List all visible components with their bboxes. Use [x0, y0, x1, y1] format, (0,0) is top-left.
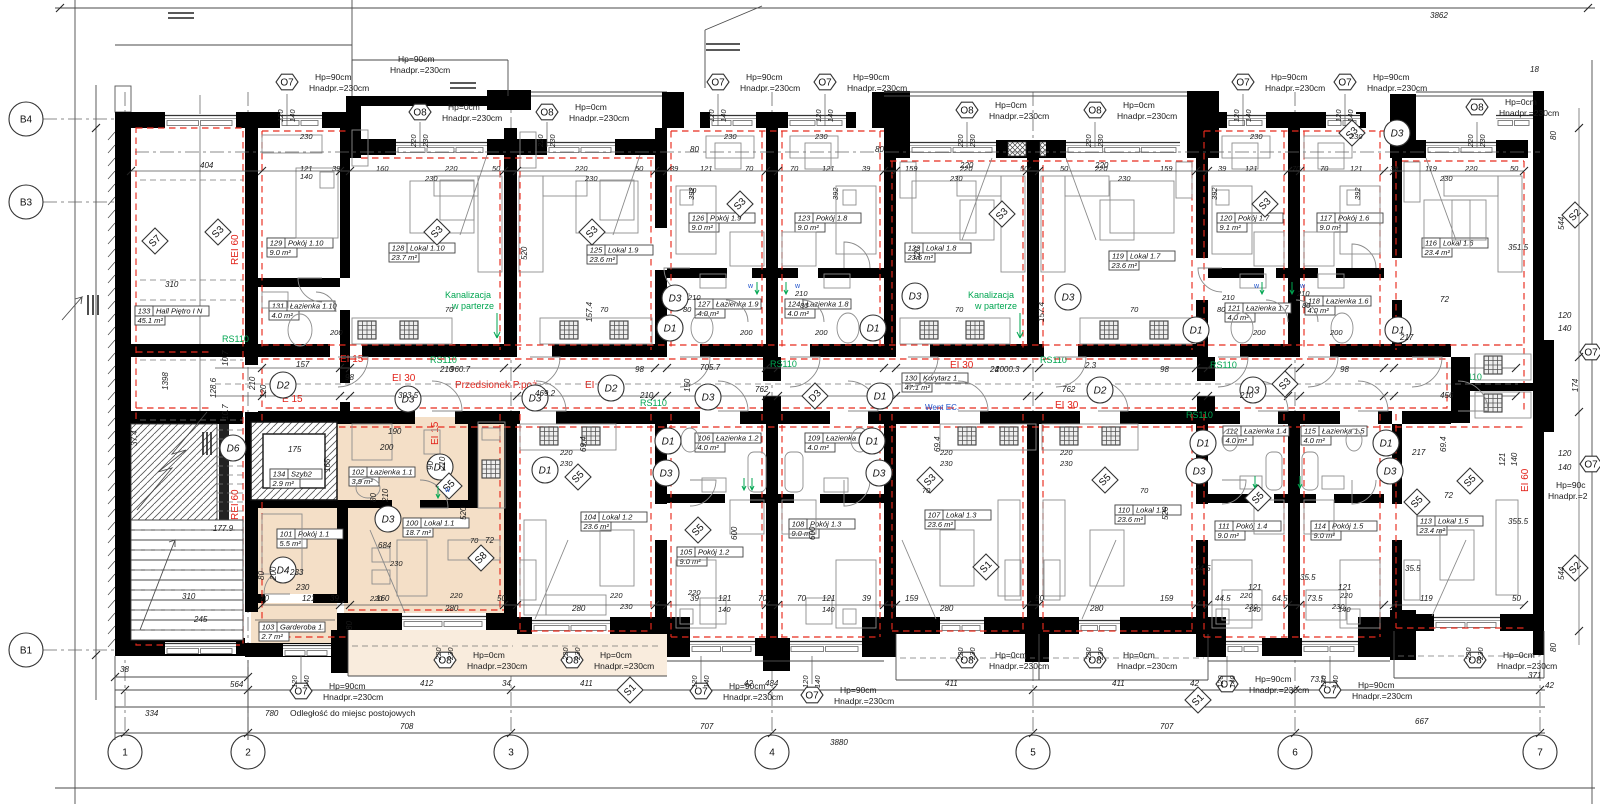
- svg-text:O8: O8: [960, 106, 974, 117]
- svg-text:104: 104: [584, 513, 597, 522]
- svg-text:D2: D2: [1094, 386, 1107, 397]
- svg-text:Lokal 1.2: Lokal 1.2: [602, 513, 633, 522]
- svg-text:42: 42: [1545, 681, 1554, 690]
- svg-text:D1: D1: [867, 324, 880, 335]
- svg-text:564: 564: [230, 680, 244, 689]
- svg-text:w: w: [794, 283, 801, 290]
- svg-text:210: 210: [794, 289, 808, 298]
- svg-text:4.0 m²: 4.0 m²: [272, 311, 294, 320]
- svg-text:121: 121: [1245, 164, 1258, 173]
- svg-text:72: 72: [485, 536, 494, 545]
- svg-text:119: 119: [1425, 164, 1438, 173]
- svg-text:D3: D3: [1193, 467, 1206, 478]
- svg-text:B3: B3: [20, 198, 33, 209]
- svg-text:w: w: [1299, 283, 1306, 290]
- svg-text:140: 140: [300, 172, 313, 181]
- svg-text:Hp=0cm: Hp=0cm: [575, 102, 607, 112]
- svg-text:412: 412: [420, 679, 434, 688]
- svg-text:334: 334: [145, 709, 159, 718]
- svg-text:121: 121: [700, 164, 713, 173]
- svg-text:160: 160: [376, 594, 390, 603]
- svg-text:D3: D3: [660, 469, 673, 480]
- svg-text:157.4: 157.4: [1037, 301, 1046, 322]
- svg-text:230: 230: [584, 174, 598, 183]
- svg-text:O7: O7: [1584, 348, 1598, 359]
- svg-text:Hp=0cm: Hp=0cm: [1503, 650, 1535, 660]
- svg-text:210: 210: [438, 456, 447, 471]
- svg-text:w parterze: w parterze: [974, 301, 1017, 311]
- svg-text:9.1 m²: 9.1 m²: [1220, 223, 1242, 232]
- svg-text:80: 80: [1549, 131, 1558, 140]
- svg-text:220: 220: [409, 134, 418, 148]
- svg-text:Lokal 1.9: Lokal 1.9: [608, 246, 639, 255]
- svg-text:Hnadpr.=230cm: Hnadpr.=230cm: [847, 83, 907, 93]
- svg-text:O7: O7: [805, 691, 819, 702]
- svg-text:Hp=90cm: Hp=90cm: [329, 681, 366, 691]
- svg-text:140: 140: [1558, 324, 1572, 333]
- svg-text:484: 484: [765, 679, 779, 688]
- svg-text:230: 230: [1478, 134, 1487, 148]
- svg-text:Lokal 1.10: Lokal 1.10: [410, 244, 445, 253]
- svg-text:O8: O8: [1470, 103, 1484, 114]
- svg-text:80: 80: [1549, 643, 1558, 652]
- svg-text:Łazienka 1.1: Łazienka 1.1: [370, 468, 413, 477]
- svg-text:Łazienka 1.8: Łazienka 1.8: [806, 300, 849, 309]
- svg-text:392: 392: [1210, 187, 1219, 200]
- svg-text:2.3: 2.3: [1084, 361, 1097, 370]
- svg-text:72: 72: [1440, 295, 1449, 304]
- svg-text:780: 780: [265, 709, 279, 718]
- svg-text:Hnadpr.=230cm: Hnadpr.=230cm: [1265, 83, 1325, 93]
- svg-text:159: 159: [1160, 594, 1174, 603]
- svg-text:123: 123: [798, 214, 811, 223]
- svg-text:70: 70: [260, 594, 269, 603]
- svg-text:23.6 m²: 23.6 m²: [589, 255, 616, 264]
- svg-text:3862: 3862: [1430, 11, 1448, 20]
- svg-text:Garderoba 1.: Garderoba 1.: [280, 623, 324, 632]
- svg-text:102: 102: [352, 468, 365, 477]
- svg-text:72: 72: [1444, 491, 1453, 500]
- svg-text:220: 220: [444, 164, 458, 173]
- svg-text:120: 120: [1334, 109, 1343, 122]
- svg-text:Hp=0cm: Hp=0cm: [1505, 97, 1537, 107]
- svg-text:230: 230: [968, 134, 977, 148]
- svg-text:371: 371: [1528, 671, 1541, 680]
- svg-text:23.6 m²: 23.6 m²: [1111, 261, 1138, 270]
- svg-text:140: 140: [1244, 109, 1253, 122]
- svg-text:70: 70: [790, 164, 799, 173]
- svg-text:121: 121: [1248, 583, 1261, 592]
- svg-text:70: 70: [922, 486, 931, 495]
- svg-text:Hp=0cm: Hp=0cm: [995, 100, 1027, 110]
- svg-text:121: 121: [1228, 304, 1241, 313]
- svg-text:667: 667: [1415, 717, 1429, 726]
- svg-text:520: 520: [913, 246, 922, 260]
- svg-text:Lokal 1.7: Lokal 1.7: [1130, 252, 1161, 261]
- svg-text:7: 7: [1537, 748, 1543, 759]
- svg-text:w parterze: w parterze: [451, 301, 494, 311]
- svg-text:O8: O8: [413, 108, 427, 119]
- svg-text:220: 220: [1464, 164, 1478, 173]
- svg-text:w: w: [1253, 283, 1260, 290]
- svg-text:Hnadpr.=230cm: Hnadpr.=230cm: [569, 113, 629, 123]
- svg-text:120: 120: [1232, 109, 1241, 122]
- svg-text:392: 392: [831, 187, 840, 200]
- svg-text:Hnadpr.=230cm: Hnadpr.=230cm: [1499, 108, 1559, 118]
- svg-text:230: 230: [1117, 174, 1131, 183]
- svg-text:404: 404: [200, 161, 214, 170]
- svg-text:O7: O7: [711, 78, 725, 89]
- svg-text:120: 120: [290, 675, 299, 688]
- svg-text:5: 5: [1030, 748, 1036, 759]
- svg-text:165: 165: [323, 458, 332, 472]
- svg-text:230: 230: [1096, 647, 1105, 661]
- svg-text:230: 230: [573, 647, 582, 661]
- svg-text:90: 90: [426, 461, 435, 470]
- svg-text:140: 140: [1228, 675, 1237, 688]
- svg-text:120: 120: [814, 109, 823, 122]
- svg-text:70: 70: [1320, 164, 1329, 173]
- svg-text:EI 30: EI 30: [950, 360, 974, 371]
- svg-text:EI 30: EI 30: [392, 373, 416, 384]
- svg-text:392: 392: [1353, 187, 1362, 200]
- svg-text:4.0 m²: 4.0 m²: [1304, 436, 1326, 445]
- svg-text:217: 217: [1399, 333, 1414, 342]
- svg-text:Hp=90cm: Hp=90cm: [1255, 674, 1292, 684]
- svg-text:230: 230: [1349, 132, 1363, 141]
- svg-text:80: 80: [345, 621, 354, 630]
- svg-text:220: 220: [449, 591, 463, 600]
- svg-text:Hp=90cm: Hp=90cm: [840, 685, 877, 695]
- svg-text:Hnadpr.=230cm: Hnadpr.=230cm: [467, 661, 527, 671]
- svg-text:230: 230: [1249, 132, 1263, 141]
- svg-text:D1: D1: [664, 324, 677, 335]
- svg-text:Hnadpr.=230cm: Hnadpr.=230cm: [442, 113, 502, 123]
- svg-text:50: 50: [492, 164, 501, 173]
- svg-text:Kanalizacja: Kanalizacja: [968, 290, 1014, 300]
- svg-text:45.1 m²: 45.1 m²: [138, 316, 164, 325]
- svg-text:120: 120: [259, 384, 268, 398]
- svg-text:140: 140: [1331, 675, 1340, 688]
- svg-text:707: 707: [1160, 722, 1174, 731]
- svg-text:Hall Piętro I N: Hall Piętro I N: [156, 307, 203, 316]
- svg-text:140: 140: [1510, 452, 1519, 466]
- svg-text:D3: D3: [702, 393, 715, 404]
- svg-text:Hnadpr.=230cm: Hnadpr.=230cm: [309, 83, 369, 93]
- svg-text:Hnadpr.=230cm: Hnadpr.=230cm: [1249, 685, 1309, 695]
- svg-text:456: 456: [1440, 391, 1454, 400]
- svg-text:600: 600: [808, 526, 817, 540]
- svg-text:210: 210: [687, 293, 701, 302]
- svg-text:121: 121: [822, 164, 835, 173]
- svg-text:D3: D3: [382, 515, 395, 526]
- svg-text:220: 220: [561, 647, 570, 661]
- svg-text:230: 230: [548, 134, 557, 148]
- svg-text:23.6 m²: 23.6 m²: [927, 520, 954, 529]
- svg-text:108: 108: [792, 520, 805, 529]
- svg-text:220: 220: [434, 647, 443, 661]
- svg-text:Łazienka 1.2: Łazienka 1.2: [716, 434, 759, 443]
- svg-text:140: 140: [702, 675, 711, 688]
- svg-text:220: 220: [1094, 161, 1109, 170]
- svg-text:Korytarz 1: Korytarz 1: [923, 374, 957, 383]
- svg-text:Hp=90cm: Hp=90cm: [853, 72, 890, 82]
- svg-text:80: 80: [690, 145, 699, 154]
- svg-text:Hnadpr.=230cm: Hnadpr.=230cm: [989, 111, 1049, 121]
- svg-text:210: 210: [639, 391, 654, 400]
- svg-text:Hnadpr.=230cm: Hnadpr.=230cm: [323, 692, 383, 702]
- svg-text:230: 230: [424, 174, 438, 183]
- svg-text:220: 220: [1059, 448, 1073, 457]
- svg-text:1: 1: [122, 748, 128, 759]
- svg-text:9.0 m²: 9.0 m²: [692, 223, 714, 232]
- svg-text:220: 220: [1464, 647, 1473, 661]
- svg-text:101: 101: [280, 530, 293, 539]
- svg-text:Hp=90cm: Hp=90cm: [746, 72, 783, 82]
- svg-text:230: 230: [299, 132, 313, 141]
- svg-text:EI 15: EI 15: [430, 421, 441, 445]
- svg-text:124: 124: [788, 300, 801, 309]
- svg-text:70: 70: [1140, 486, 1149, 495]
- svg-text:129: 129: [270, 239, 283, 248]
- svg-text:70: 70: [758, 594, 767, 603]
- svg-text:119: 119: [1112, 252, 1125, 261]
- svg-text:220: 220: [956, 647, 965, 661]
- svg-text:80: 80: [1217, 305, 1226, 314]
- svg-text:10.7: 10.7: [221, 350, 230, 366]
- svg-text:411: 411: [580, 679, 593, 688]
- svg-text:Hnadpr.=2: Hnadpr.=2: [1548, 491, 1588, 501]
- svg-text:39: 39: [690, 594, 699, 603]
- svg-text:Hnadpr.=230cm: Hnadpr.=230cm: [1117, 111, 1177, 121]
- svg-text:469.2: 469.2: [535, 389, 556, 398]
- svg-text:140: 140: [1248, 605, 1261, 614]
- svg-text:70: 70: [470, 536, 479, 545]
- svg-text:80: 80: [875, 145, 884, 154]
- svg-text:210: 210: [248, 376, 257, 391]
- svg-text:B4: B4: [20, 115, 33, 126]
- svg-text:D4: D4: [277, 566, 290, 577]
- svg-text:Lokal 1.3: Lokal 1.3: [946, 511, 977, 520]
- svg-text:50: 50: [1020, 164, 1029, 173]
- svg-text:107: 107: [928, 511, 941, 520]
- svg-text:708: 708: [400, 722, 414, 731]
- svg-text:705.7: 705.7: [700, 363, 721, 372]
- svg-text:D1: D1: [1190, 326, 1203, 337]
- svg-text:23.7 m²: 23.7 m²: [391, 253, 418, 262]
- svg-text:Went EC.: Went EC.: [925, 403, 959, 412]
- svg-text:73.5: 73.5: [1310, 675, 1326, 684]
- svg-text:707: 707: [700, 722, 714, 731]
- svg-text:39: 39: [1218, 164, 1227, 173]
- svg-text:73.5: 73.5: [1307, 594, 1323, 603]
- svg-text:Pokój 1.1: Pokój 1.1: [298, 530, 329, 539]
- svg-text:140: 140: [288, 109, 297, 122]
- svg-text:Hnadpr.=230cm: Hnadpr.=230cm: [834, 696, 894, 706]
- svg-text:520: 520: [520, 246, 529, 260]
- svg-text:37.4: 37.4: [130, 430, 139, 446]
- svg-text:600: 600: [730, 526, 739, 540]
- svg-text:220: 220: [609, 591, 623, 600]
- svg-text:140: 140: [1338, 605, 1351, 614]
- svg-text:210: 210: [381, 488, 390, 503]
- svg-text:EI 60: EI 60: [1520, 468, 1531, 492]
- svg-text:O7: O7: [1236, 78, 1250, 89]
- svg-text:117: 117: [1320, 214, 1333, 223]
- svg-text:230: 230: [295, 583, 310, 592]
- svg-text:RS110: RS110: [1186, 410, 1213, 420]
- svg-text:230: 230: [949, 174, 963, 183]
- svg-text:200: 200: [379, 443, 394, 452]
- svg-text:140: 140: [826, 109, 835, 122]
- svg-text:190: 190: [388, 427, 402, 436]
- svg-text:70: 70: [745, 164, 754, 173]
- svg-text:121: 121: [718, 594, 731, 603]
- svg-text:159: 159: [905, 164, 918, 173]
- svg-text:80: 80: [257, 571, 266, 580]
- svg-text:O7: O7: [1584, 460, 1598, 471]
- svg-text:Lokal 1.1: Lokal 1.1: [424, 519, 454, 528]
- svg-text:520: 520: [459, 506, 468, 520]
- svg-text:140: 140: [302, 675, 311, 688]
- svg-text:120: 120: [1558, 311, 1572, 320]
- svg-text:230: 230: [446, 647, 455, 661]
- svg-text:O7: O7: [280, 78, 294, 89]
- svg-text:411: 411: [1112, 679, 1125, 688]
- svg-text:80: 80: [369, 493, 378, 502]
- svg-text:D1: D1: [874, 392, 887, 403]
- svg-text:35.5: 35.5: [1300, 573, 1316, 582]
- svg-text:110: 110: [1118, 506, 1131, 515]
- svg-text:2: 2: [245, 748, 251, 759]
- svg-text:230: 230: [619, 602, 633, 611]
- svg-text:220: 220: [959, 161, 974, 170]
- svg-text:Hnadpr.=230cm: Hnadpr.=230cm: [1352, 691, 1412, 701]
- svg-text:Odległość do miejsc postojowyc: Odległość do miejsc postojowych: [290, 708, 415, 718]
- svg-text:D6: D6: [227, 444, 240, 455]
- svg-text:Hp=0cm: Hp=0cm: [1123, 650, 1155, 660]
- svg-text:200: 200: [329, 328, 343, 337]
- svg-text:80: 80: [1302, 301, 1311, 310]
- svg-text:Hnadpr.=230cm: Hnadpr.=230cm: [740, 83, 800, 93]
- svg-text:121: 121: [1498, 453, 1507, 466]
- svg-text:220: 220: [536, 134, 545, 148]
- svg-text:Łazienka 1.10: Łazienka 1.10: [290, 302, 338, 311]
- svg-text:69.4: 69.4: [579, 436, 588, 452]
- svg-text:23.4 m²: 23.4 m²: [1424, 248, 1451, 257]
- svg-text:9.0 m²: 9.0 m²: [798, 223, 820, 232]
- svg-text:Lokal 1.5: Lokal 1.5: [1438, 517, 1469, 526]
- svg-text:Hnadpr.=230cm: Hnadpr.=230cm: [1497, 661, 1557, 671]
- svg-text:9.0 m²: 9.0 m²: [1314, 531, 1336, 540]
- svg-text:220: 220: [559, 448, 573, 457]
- svg-text:230: 230: [939, 459, 953, 468]
- svg-text:200: 200: [739, 328, 753, 337]
- svg-text:220: 220: [1084, 134, 1093, 148]
- svg-text:42: 42: [1190, 679, 1199, 688]
- svg-text:Hnadpr.=230cm: Hnadpr.=230cm: [1117, 661, 1177, 671]
- svg-text:160: 160: [376, 164, 389, 173]
- svg-text:D3: D3: [1391, 129, 1404, 140]
- svg-text:100: 100: [406, 519, 419, 528]
- svg-text:120: 120: [801, 675, 810, 688]
- svg-text:Hp=90c: Hp=90c: [1556, 480, 1586, 490]
- svg-text:23.4 m²: 23.4 m²: [1419, 526, 1446, 535]
- svg-text:230: 230: [1439, 174, 1453, 183]
- svg-text:Hnadpr.=230cm: Hnadpr.=230cm: [1367, 83, 1427, 93]
- svg-text:210: 210: [1221, 293, 1235, 302]
- svg-text:762: 762: [755, 385, 769, 394]
- svg-text:217: 217: [1411, 448, 1426, 457]
- svg-text:3880: 3880: [830, 738, 848, 747]
- svg-text:128: 128: [392, 244, 405, 253]
- svg-text:6: 6: [1292, 748, 1298, 759]
- svg-text:4.0 m²: 4.0 m²: [788, 309, 810, 318]
- svg-text:Hp=90cm: Hp=90cm: [1373, 72, 1410, 82]
- svg-text:80: 80: [683, 305, 692, 314]
- svg-text:177.9: 177.9: [213, 524, 234, 533]
- svg-text:Hp=0cm: Hp=0cm: [473, 650, 505, 660]
- svg-text:REI 60: REI 60: [230, 489, 241, 520]
- svg-text:O7: O7: [818, 78, 832, 89]
- svg-text:w: w: [747, 283, 754, 290]
- svg-text:Pokój 1.10: Pokój 1.10: [288, 239, 324, 248]
- svg-text:2000.3: 2000.3: [994, 365, 1020, 374]
- svg-text:121: 121: [1338, 583, 1351, 592]
- svg-text:Hp=90cm: Hp=90cm: [398, 54, 435, 64]
- svg-text:50: 50: [497, 594, 506, 603]
- svg-text:Hp=90cm: Hp=90cm: [1271, 72, 1308, 82]
- svg-text:D1: D1: [1197, 439, 1210, 450]
- svg-text:Łazienka 1.4: Łazienka 1.4: [1244, 427, 1287, 436]
- svg-text:70: 70: [688, 186, 697, 195]
- svg-text:200: 200: [1252, 328, 1266, 337]
- svg-text:D3: D3: [1384, 467, 1397, 478]
- svg-text:39: 39: [1390, 164, 1399, 173]
- svg-text:133: 133: [138, 307, 151, 316]
- svg-text:4.0 m²: 4.0 m²: [698, 443, 720, 452]
- svg-text:210: 210: [1239, 391, 1254, 400]
- svg-text:4.0 m²: 4.0 m²: [808, 443, 830, 452]
- svg-text:Pokój 1.8: Pokój 1.8: [816, 214, 848, 223]
- svg-text:9.0 m²: 9.0 m²: [270, 248, 292, 257]
- svg-text:38: 38: [120, 665, 129, 674]
- svg-text:RS110: RS110: [430, 355, 457, 365]
- svg-text:EI 30: EI 30: [1055, 400, 1079, 411]
- svg-text:220: 220: [1084, 647, 1093, 661]
- svg-text:50: 50: [1512, 594, 1521, 603]
- svg-text:130: 130: [905, 374, 918, 383]
- svg-text:140: 140: [822, 605, 835, 614]
- svg-text:121: 121: [822, 594, 835, 603]
- svg-text:103: 103: [262, 623, 275, 632]
- svg-text:119: 119: [1420, 594, 1433, 603]
- svg-text:120: 120: [690, 675, 699, 688]
- svg-text:23.6 m²: 23.6 m²: [1117, 515, 1144, 524]
- svg-text:34: 34: [502, 679, 511, 688]
- svg-text:2.7 m²: 2.7 m²: [261, 632, 284, 641]
- svg-text:111: 111: [1218, 522, 1229, 531]
- svg-text:O7: O7: [1338, 78, 1352, 89]
- svg-text:98: 98: [1160, 365, 1169, 374]
- svg-text:200: 200: [1329, 328, 1343, 337]
- svg-text:EI 15: EI 15: [340, 354, 364, 365]
- svg-text:4.0 m²: 4.0 m²: [1226, 436, 1248, 445]
- svg-text:355.5: 355.5: [1508, 517, 1529, 526]
- svg-text:310: 310: [182, 592, 196, 601]
- svg-text:134: 134: [273, 470, 286, 479]
- svg-text:Hnadpr.=230cm: Hnadpr.=230cm: [989, 661, 1049, 671]
